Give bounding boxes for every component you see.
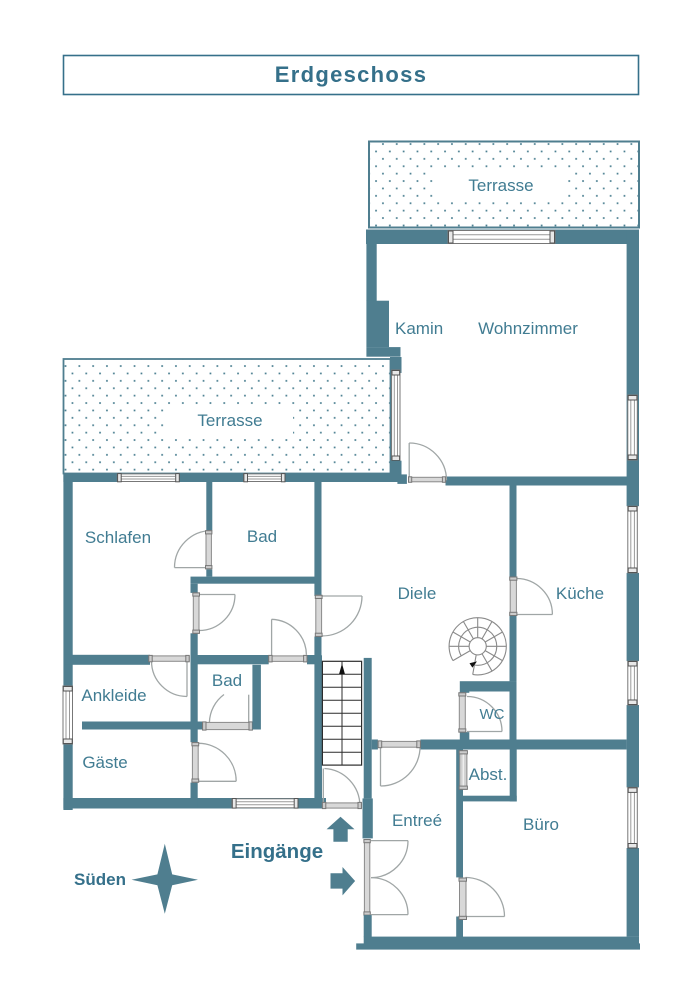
svg-text:Kamin: Kamin xyxy=(395,319,443,338)
svg-text:Büro: Büro xyxy=(523,815,559,834)
svg-text:Ankleide: Ankleide xyxy=(81,686,146,705)
svg-text:Eingänge: Eingänge xyxy=(231,840,323,863)
svg-text:Gäste: Gäste xyxy=(82,753,127,772)
svg-text:Entreé: Entreé xyxy=(392,811,442,830)
svg-text:Bad: Bad xyxy=(212,671,242,690)
svg-text:Erdgeschoss: Erdgeschoss xyxy=(275,62,427,87)
svg-text:Küche: Küche xyxy=(556,584,604,603)
svg-text:Abst.: Abst. xyxy=(469,765,508,784)
svg-text:Diele: Diele xyxy=(398,584,437,603)
svg-text:Süden: Süden xyxy=(74,870,126,889)
svg-text:Terrasse: Terrasse xyxy=(468,176,533,195)
svg-text:Bad: Bad xyxy=(247,527,277,546)
svg-text:Wohnzimmer: Wohnzimmer xyxy=(478,319,578,338)
svg-text:Schlafen: Schlafen xyxy=(85,528,151,547)
svg-text:WC: WC xyxy=(480,706,505,723)
svg-text:Terrasse: Terrasse xyxy=(197,411,262,430)
